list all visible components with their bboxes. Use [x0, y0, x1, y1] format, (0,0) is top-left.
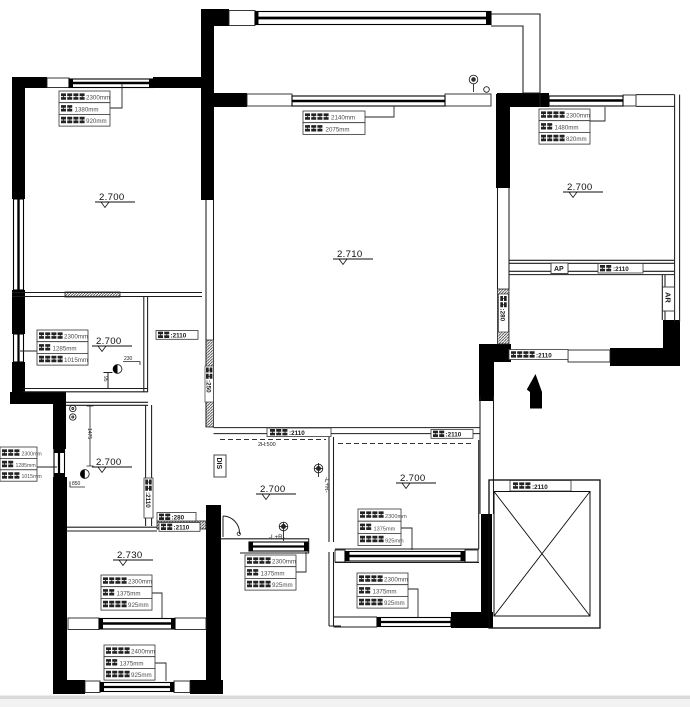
svg-text:2.700: 2.700: [400, 473, 426, 484]
svg-text:2300mm: 2300mm: [64, 334, 88, 341]
svg-text:AR: AR: [664, 292, 673, 303]
svg-text:1375mm: 1375mm: [261, 570, 285, 577]
svg-text:925mm: 925mm: [385, 539, 404, 545]
svg-text:1375mm: 1375mm: [120, 660, 144, 667]
svg-text:2.700: 2.700: [567, 182, 593, 193]
svg-text:925mm: 925mm: [131, 672, 152, 679]
svg-text:925mm: 925mm: [384, 600, 405, 607]
svg-text::280: :280: [499, 309, 506, 322]
svg-text:2300mm: 2300mm: [22, 451, 42, 457]
svg-text::250: :250: [205, 380, 212, 393]
svg-text:2300mm: 2300mm: [86, 95, 110, 102]
svg-text::2110: :2110: [536, 353, 552, 360]
svg-text:925mm: 925mm: [128, 602, 149, 609]
svg-text:95: 95: [102, 376, 108, 382]
svg-text:2300mm: 2300mm: [385, 514, 407, 520]
svg-text::280: :280: [172, 515, 185, 522]
svg-text:1380mm: 1380mm: [75, 106, 99, 113]
svg-text::2110: :2110: [144, 492, 151, 508]
svg-text:2075mm: 2075mm: [326, 126, 350, 133]
svg-text:2300mm: 2300mm: [384, 577, 408, 584]
svg-text:850: 850: [72, 481, 81, 487]
svg-text:1015mm: 1015mm: [64, 357, 88, 364]
svg-text:2.700: 2.700: [96, 457, 122, 468]
svg-text:2.700: 2.700: [99, 192, 125, 203]
svg-text:1480mm: 1480mm: [555, 124, 579, 131]
svg-text:2400mm: 2400mm: [131, 649, 155, 656]
svg-text:1475: 1475: [86, 428, 92, 439]
svg-text:AP: AP: [554, 266, 564, 273]
svg-text::2110: :2110: [171, 333, 187, 340]
svg-text:-L+R-: -L+R-: [323, 477, 330, 493]
svg-text:2.700: 2.700: [96, 336, 122, 347]
svg-text:1375mm: 1375mm: [373, 588, 397, 595]
svg-text:2.730: 2.730: [117, 550, 143, 561]
svg-text:1285mm: 1285mm: [53, 345, 77, 352]
svg-text:2.710: 2.710: [337, 249, 363, 260]
svg-text:2.700: 2.700: [260, 484, 286, 495]
svg-text:1375mm: 1375mm: [117, 590, 141, 597]
svg-text:1285mm: 1285mm: [16, 463, 36, 469]
svg-text:2300mm: 2300mm: [566, 113, 590, 120]
svg-text:2300mm: 2300mm: [272, 559, 296, 566]
svg-text:2H:500: 2H:500: [258, 442, 276, 448]
svg-text::2110: :2110: [613, 266, 629, 273]
svg-text:1015mm: 1015mm: [22, 474, 42, 480]
svg-text:2140mm: 2140mm: [331, 115, 355, 122]
svg-text:230: 230: [124, 356, 133, 362]
svg-text::2110: :2110: [532, 484, 548, 491]
svg-text::2110: :2110: [174, 525, 190, 532]
svg-text:2300mm: 2300mm: [128, 579, 152, 586]
svg-text::2110: :2110: [289, 430, 305, 437]
svg-text:1375mm: 1375mm: [374, 526, 396, 532]
svg-text:920mm: 920mm: [86, 118, 107, 125]
svg-text:820mm: 820mm: [566, 136, 587, 143]
svg-text:-L+R-: -L+R-: [269, 534, 285, 541]
svg-text::2110: :2110: [446, 432, 462, 439]
svg-text:925mm: 925mm: [272, 582, 293, 589]
svg-text:DIS: DIS: [215, 458, 222, 470]
